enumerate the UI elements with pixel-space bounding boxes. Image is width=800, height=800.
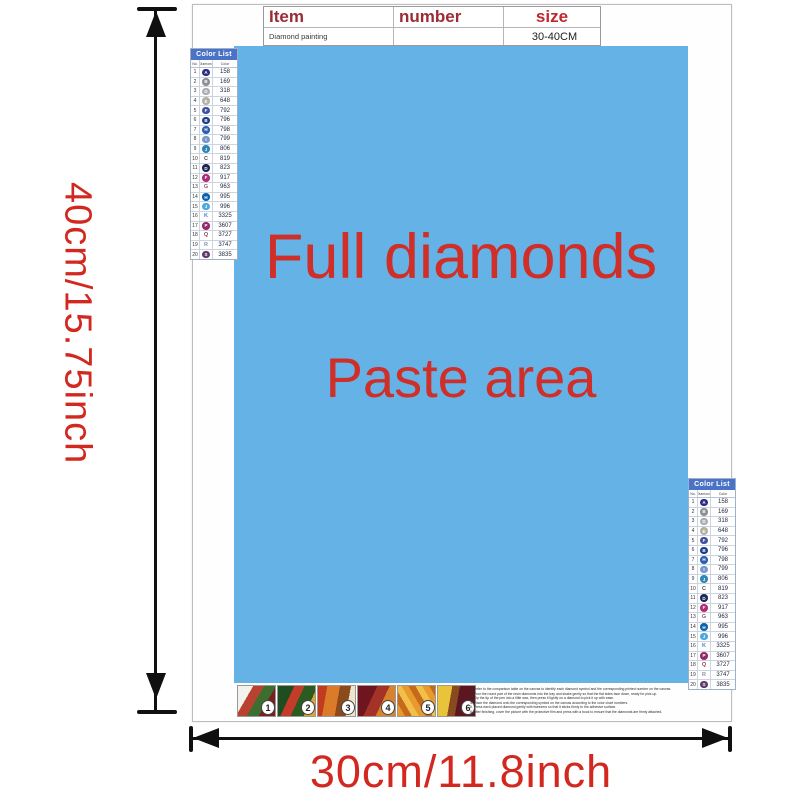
arrowhead-left-icon	[193, 728, 219, 748]
diamond-symbol-icon: R	[202, 241, 210, 249]
diamond-symbol-icon: Q	[700, 662, 708, 670]
paste-area-title-line1: Full diamonds	[265, 221, 657, 293]
color-list-row: 14 H 995	[689, 623, 735, 633]
diamond-symbol-cell: Q	[200, 231, 213, 240]
diamond-symbol-icon: R	[700, 671, 708, 679]
color-list-row: 8 I 799	[191, 135, 237, 145]
color-list-row: 16 K 3325	[689, 642, 735, 652]
step-number-badge: 3	[341, 700, 355, 715]
color-row-code: 3727	[213, 231, 237, 240]
color-row-number: 3	[191, 87, 200, 96]
color-row-number: 7	[191, 126, 200, 135]
color-row-number: 13	[191, 183, 200, 192]
diamond-painting-infographic: 40cm/15.75inch Item number size Diamond …	[0, 0, 800, 800]
diamond-symbol-icon: B	[700, 547, 708, 555]
step-number-badge: 4	[381, 700, 395, 715]
diamond-symbol-cell: J	[698, 575, 711, 584]
dimension-cap-bottom	[137, 710, 177, 714]
arrowhead-down-icon	[146, 673, 166, 699]
col-diamond: Diamond	[200, 60, 213, 67]
color-list-column-headers: No. Diamond Color	[191, 60, 237, 68]
color-row-code: 792	[711, 536, 735, 545]
color-row-code: 917	[213, 174, 237, 183]
diamond-symbol-cell: B	[698, 546, 711, 555]
color-row-code: 963	[711, 613, 735, 622]
diamond-symbol-icon: H	[700, 556, 708, 564]
color-row-code: 169	[711, 508, 735, 517]
diamond-symbol-cell: H	[200, 193, 213, 202]
diamond-symbol-cell: F	[200, 174, 213, 183]
size-value-cell: 30-40CM	[504, 28, 600, 45]
color-row-code: 3835	[711, 680, 735, 689]
color-row-code: 648	[711, 527, 735, 536]
diamond-symbol-cell: I	[200, 135, 213, 144]
col-color: Color	[213, 60, 237, 67]
diamond-symbol-icon: G	[202, 184, 210, 192]
diamond-symbol-cell: B	[200, 116, 213, 125]
color-row-code: 3325	[213, 212, 237, 221]
color-list-left: Color List No. Diamond Color 1 A 158 2	[190, 48, 238, 260]
color-row-number: 19	[689, 671, 698, 680]
color-row-code: 158	[711, 498, 735, 507]
dimension-line-vertical	[154, 10, 157, 710]
color-row-code: 963	[213, 183, 237, 192]
color-list-right: Color List No. Diamond Color 1 A 158 2	[688, 478, 736, 690]
diamond-symbol-icon: G	[700, 614, 708, 622]
diamond-symbol-cell: E	[698, 527, 711, 536]
diamond-symbol-icon: P	[202, 222, 210, 230]
color-row-code: 823	[213, 164, 237, 173]
diamond-symbol-icon: J	[700, 575, 708, 583]
color-row-number: 6	[689, 546, 698, 555]
color-row-code: 799	[711, 565, 735, 574]
color-row-number: 13	[689, 613, 698, 622]
diamond-symbol-cell: J	[200, 202, 213, 211]
color-list-row: 17 P 3607	[689, 652, 735, 662]
color-row-code: 318	[711, 517, 735, 526]
diamond-symbol-cell: G	[698, 613, 711, 622]
diamond-symbol-icon: F	[700, 537, 708, 545]
col-no: No.	[191, 60, 200, 67]
diamond-symbol-cell: D	[200, 87, 213, 96]
color-list-row: 13 G 963	[191, 183, 237, 193]
color-row-code: 806	[711, 575, 735, 584]
color-row-code: 995	[711, 623, 735, 632]
color-list-row: 8 I 799	[689, 565, 735, 575]
color-row-number: 18	[689, 661, 698, 670]
color-row-number: 6	[191, 116, 200, 125]
diamond-symbol-icon: D	[700, 594, 708, 602]
color-row-number: 5	[689, 536, 698, 545]
diamond-symbol-icon: B	[202, 117, 210, 125]
diamond-symbol-cell: B	[200, 78, 213, 87]
color-row-number: 17	[689, 652, 698, 661]
color-list-title: Color List	[689, 479, 735, 490]
diamond-symbol-icon: C	[700, 585, 708, 593]
color-list-row: 7 H 798	[689, 556, 735, 566]
diamond-symbol-cell: Q	[698, 661, 711, 670]
instructions-text: 1. Refer to the comparison table on the …	[470, 687, 688, 715]
paste-area-title-line2: Paste area	[326, 345, 597, 410]
diamond-symbol-icon: E	[202, 97, 210, 105]
diamond-symbol-cell: D	[698, 594, 711, 603]
item-value-cell: Diamond painting	[264, 28, 394, 45]
color-row-code: 823	[711, 594, 735, 603]
color-list-row: 11 D 823	[689, 594, 735, 604]
diamond-symbol-cell: I	[698, 565, 711, 574]
color-row-number: 15	[191, 202, 200, 211]
color-row-number: 15	[689, 632, 698, 641]
step-number-badge: 5	[421, 700, 435, 715]
step-photo-3: 3	[317, 685, 356, 717]
diamond-symbol-cell: C	[200, 154, 213, 163]
color-list-row: 16 K 3325	[191, 212, 237, 222]
diamond-symbol-cell: E	[200, 97, 213, 106]
color-list-row: 18 Q 3727	[191, 231, 237, 241]
color-row-code: 3727	[711, 661, 735, 670]
color-row-number: 8	[689, 565, 698, 574]
color-list-row: 19 R 3747	[689, 671, 735, 681]
diamond-symbol-cell: S	[200, 250, 213, 259]
item-header-cell: Item	[264, 7, 394, 28]
color-list-rows: 1 A 158 2 B 169 3 D 318	[689, 498, 735, 689]
color-row-number: 14	[689, 623, 698, 632]
color-list-row: 9 J 806	[689, 575, 735, 585]
color-list-row: 20 S 3835	[689, 680, 735, 689]
color-list-row: 19 R 3747	[191, 241, 237, 251]
color-list-row: 18 Q 3727	[689, 661, 735, 671]
diamond-symbol-icon: J	[202, 145, 210, 153]
color-list-column-headers: No. Diamond Color	[689, 490, 735, 498]
color-list-row: 3 D 318	[689, 517, 735, 527]
color-row-number: 1	[191, 68, 200, 77]
instruction-line: 6. After finishing, cover the picture wi…	[470, 710, 688, 715]
color-row-number: 11	[689, 594, 698, 603]
diamond-symbol-icon: I	[700, 566, 708, 574]
diamond-symbol-icon: B	[202, 78, 210, 86]
color-list-row: 6 B 796	[191, 116, 237, 126]
color-row-number: 5	[191, 106, 200, 115]
color-row-number: 12	[191, 174, 200, 183]
size-header-cell: size	[504, 7, 600, 28]
color-list-row: 15 J 996	[689, 632, 735, 642]
number-value-cell	[394, 28, 504, 45]
diamond-symbol-cell: D	[698, 517, 711, 526]
color-row-number: 3	[689, 517, 698, 526]
color-row-code: 798	[213, 126, 237, 135]
dimension-line-horizontal	[192, 737, 729, 740]
diamond-symbol-cell: G	[200, 183, 213, 192]
diamond-symbol-cell: C	[698, 584, 711, 593]
color-row-number: 7	[689, 556, 698, 565]
color-row-number: 11	[191, 164, 200, 173]
color-row-number: 9	[689, 575, 698, 584]
diamond-symbol-cell: F	[698, 604, 711, 613]
diamond-symbol-cell: B	[698, 508, 711, 517]
diamond-symbol-cell: H	[200, 126, 213, 135]
diamond-symbol-icon: I	[202, 136, 210, 144]
diamond-symbol-icon: F	[202, 107, 210, 115]
step-photo-1: 1	[237, 685, 276, 717]
color-row-code: 318	[213, 87, 237, 96]
diamond-symbol-cell: S	[698, 680, 711, 689]
step-photo-2: 2	[277, 685, 316, 717]
color-list-row: 20 S 3835	[191, 250, 237, 259]
color-list-row: 12 F 917	[689, 604, 735, 614]
diamond-symbol-icon: J	[700, 633, 708, 641]
diamond-symbol-cell: J	[200, 145, 213, 154]
color-row-number: 12	[689, 604, 698, 613]
color-row-number: 16	[689, 642, 698, 651]
diamond-symbol-icon: J	[202, 203, 210, 211]
color-row-code: 796	[711, 546, 735, 555]
diamond-symbol-icon: A	[202, 69, 210, 77]
color-list-row: 6 B 796	[689, 546, 735, 556]
diamond-symbol-icon: D	[700, 518, 708, 526]
col-diamond: Diamond	[698, 490, 711, 497]
color-row-number: 10	[689, 584, 698, 593]
diamond-symbol-icon: A	[700, 499, 708, 507]
color-row-number: 20	[191, 250, 200, 259]
color-list-row: 11 D 823	[191, 164, 237, 174]
color-list-row: 10 C 819	[191, 154, 237, 164]
diamond-symbol-icon: E	[700, 527, 708, 535]
color-row-number: 10	[191, 154, 200, 163]
color-row-number: 4	[191, 97, 200, 106]
color-list-row: 14 H 995	[191, 193, 237, 203]
color-row-code: 3607	[213, 222, 237, 231]
step-number-badge: 2	[301, 700, 315, 715]
color-row-code: 3747	[711, 671, 735, 680]
step-photo-5: 5	[397, 685, 436, 717]
diamond-symbol-cell: A	[698, 498, 711, 507]
color-row-number: 18	[191, 231, 200, 240]
color-list-row: 5 F 792	[689, 536, 735, 546]
diamond-symbol-icon: D	[202, 88, 210, 96]
col-no: No.	[689, 490, 698, 497]
color-list-row: 10 C 819	[689, 584, 735, 594]
color-list-row: 2 B 169	[191, 78, 237, 88]
color-row-code: 3607	[711, 652, 735, 661]
diamond-symbol-cell: H	[698, 623, 711, 632]
color-list-row: 9 J 806	[191, 145, 237, 155]
color-row-number: 2	[191, 78, 200, 87]
color-row-code: 996	[711, 632, 735, 641]
color-list-row: 15 J 996	[191, 202, 237, 212]
arrowhead-right-icon	[702, 728, 728, 748]
width-dimension-label: 30cm/11.8inch	[193, 746, 729, 798]
paste-area: Full diamonds Paste area	[234, 46, 688, 683]
color-row-number: 9	[191, 145, 200, 154]
color-row-number: 2	[689, 508, 698, 517]
diamond-symbol-icon: S	[700, 681, 708, 689]
step-number-badge: 1	[261, 700, 275, 715]
diamond-symbol-cell: K	[698, 642, 711, 651]
color-row-code: 996	[213, 202, 237, 211]
number-header-cell: number	[394, 7, 504, 28]
diamond-symbol-cell: R	[200, 241, 213, 250]
step-thumbnails: 1 2 3 4 5 6	[237, 685, 476, 717]
color-list-row: 5 F 792	[191, 106, 237, 116]
color-row-code: 169	[213, 78, 237, 87]
color-row-code: 819	[711, 584, 735, 593]
diamond-symbol-icon: B	[700, 508, 708, 516]
height-dimension-label: 40cm/15.75inch	[46, 182, 108, 532]
diamond-symbol-icon: Q	[202, 232, 210, 240]
color-row-code: 917	[711, 604, 735, 613]
color-row-number: 4	[689, 527, 698, 536]
color-list-row: 1 A 158	[689, 498, 735, 508]
color-row-code: 995	[213, 193, 237, 202]
diamond-symbol-icon: H	[202, 193, 210, 201]
color-row-code: 796	[213, 116, 237, 125]
color-row-number: 19	[191, 241, 200, 250]
color-row-code: 819	[213, 154, 237, 163]
diamond-symbol-cell: R	[698, 671, 711, 680]
diamond-symbol-icon: P	[700, 652, 708, 660]
color-list-row: 7 H 798	[191, 126, 237, 136]
color-list-rows: 1 A 158 2 B 169 3 D 318	[191, 68, 237, 259]
color-row-code: 648	[213, 97, 237, 106]
diamond-symbol-cell: K	[200, 212, 213, 221]
color-list-row: 4 E 648	[191, 97, 237, 107]
diamond-symbol-icon: F	[202, 174, 210, 182]
diamond-symbol-cell: P	[698, 652, 711, 661]
color-row-number: 20	[689, 680, 698, 689]
color-row-code: 792	[213, 106, 237, 115]
diamond-symbol-icon: K	[202, 212, 210, 220]
color-list-title: Color List	[191, 49, 237, 60]
diamond-symbol-icon: D	[202, 164, 210, 172]
diamond-symbol-icon: H	[700, 623, 708, 631]
color-list-row: 12 F 917	[191, 174, 237, 184]
diamond-symbol-cell: F	[200, 106, 213, 115]
canvas-sheet: Item number size Diamond painting 30-40C…	[192, 4, 732, 722]
diamond-symbol-icon: C	[202, 155, 210, 163]
color-row-code: 3325	[711, 642, 735, 651]
color-row-number: 14	[191, 193, 200, 202]
color-list-row: 3 D 318	[191, 87, 237, 97]
diamond-symbol-cell: A	[200, 68, 213, 77]
instruction-line: 1. Refer to the comparison table on the …	[470, 687, 688, 692]
diamond-symbol-cell: P	[200, 222, 213, 231]
diamond-symbol-cell: F	[698, 536, 711, 545]
color-list-row: 13 G 963	[689, 613, 735, 623]
color-list-row: 4 E 648	[689, 527, 735, 537]
item-info-table: Item number size Diamond painting 30-40C…	[263, 6, 601, 46]
diamond-symbol-cell: J	[698, 632, 711, 641]
diamond-symbol-icon: H	[202, 126, 210, 134]
diamond-symbol-icon: K	[700, 642, 708, 650]
color-row-code: 798	[711, 556, 735, 565]
diamond-symbol-icon: F	[700, 604, 708, 612]
arrowhead-up-icon	[146, 11, 166, 37]
color-row-number: 17	[191, 222, 200, 231]
color-row-code: 3835	[213, 250, 237, 259]
diamond-symbol-icon: S	[202, 251, 210, 259]
color-row-code: 806	[213, 145, 237, 154]
color-row-code: 3747	[213, 241, 237, 250]
color-list-row: 17 P 3607	[191, 222, 237, 232]
color-row-code: 158	[213, 68, 237, 77]
diamond-symbol-cell: H	[698, 556, 711, 565]
diamond-symbol-cell: D	[200, 164, 213, 173]
color-row-number: 1	[689, 498, 698, 507]
col-color: Color	[711, 490, 735, 497]
color-row-number: 16	[191, 212, 200, 221]
color-row-code: 799	[213, 135, 237, 144]
step-photo-4: 4	[357, 685, 396, 717]
color-list-row: 2 B 169	[689, 508, 735, 518]
color-row-number: 8	[191, 135, 200, 144]
color-list-row: 1 A 158	[191, 68, 237, 78]
